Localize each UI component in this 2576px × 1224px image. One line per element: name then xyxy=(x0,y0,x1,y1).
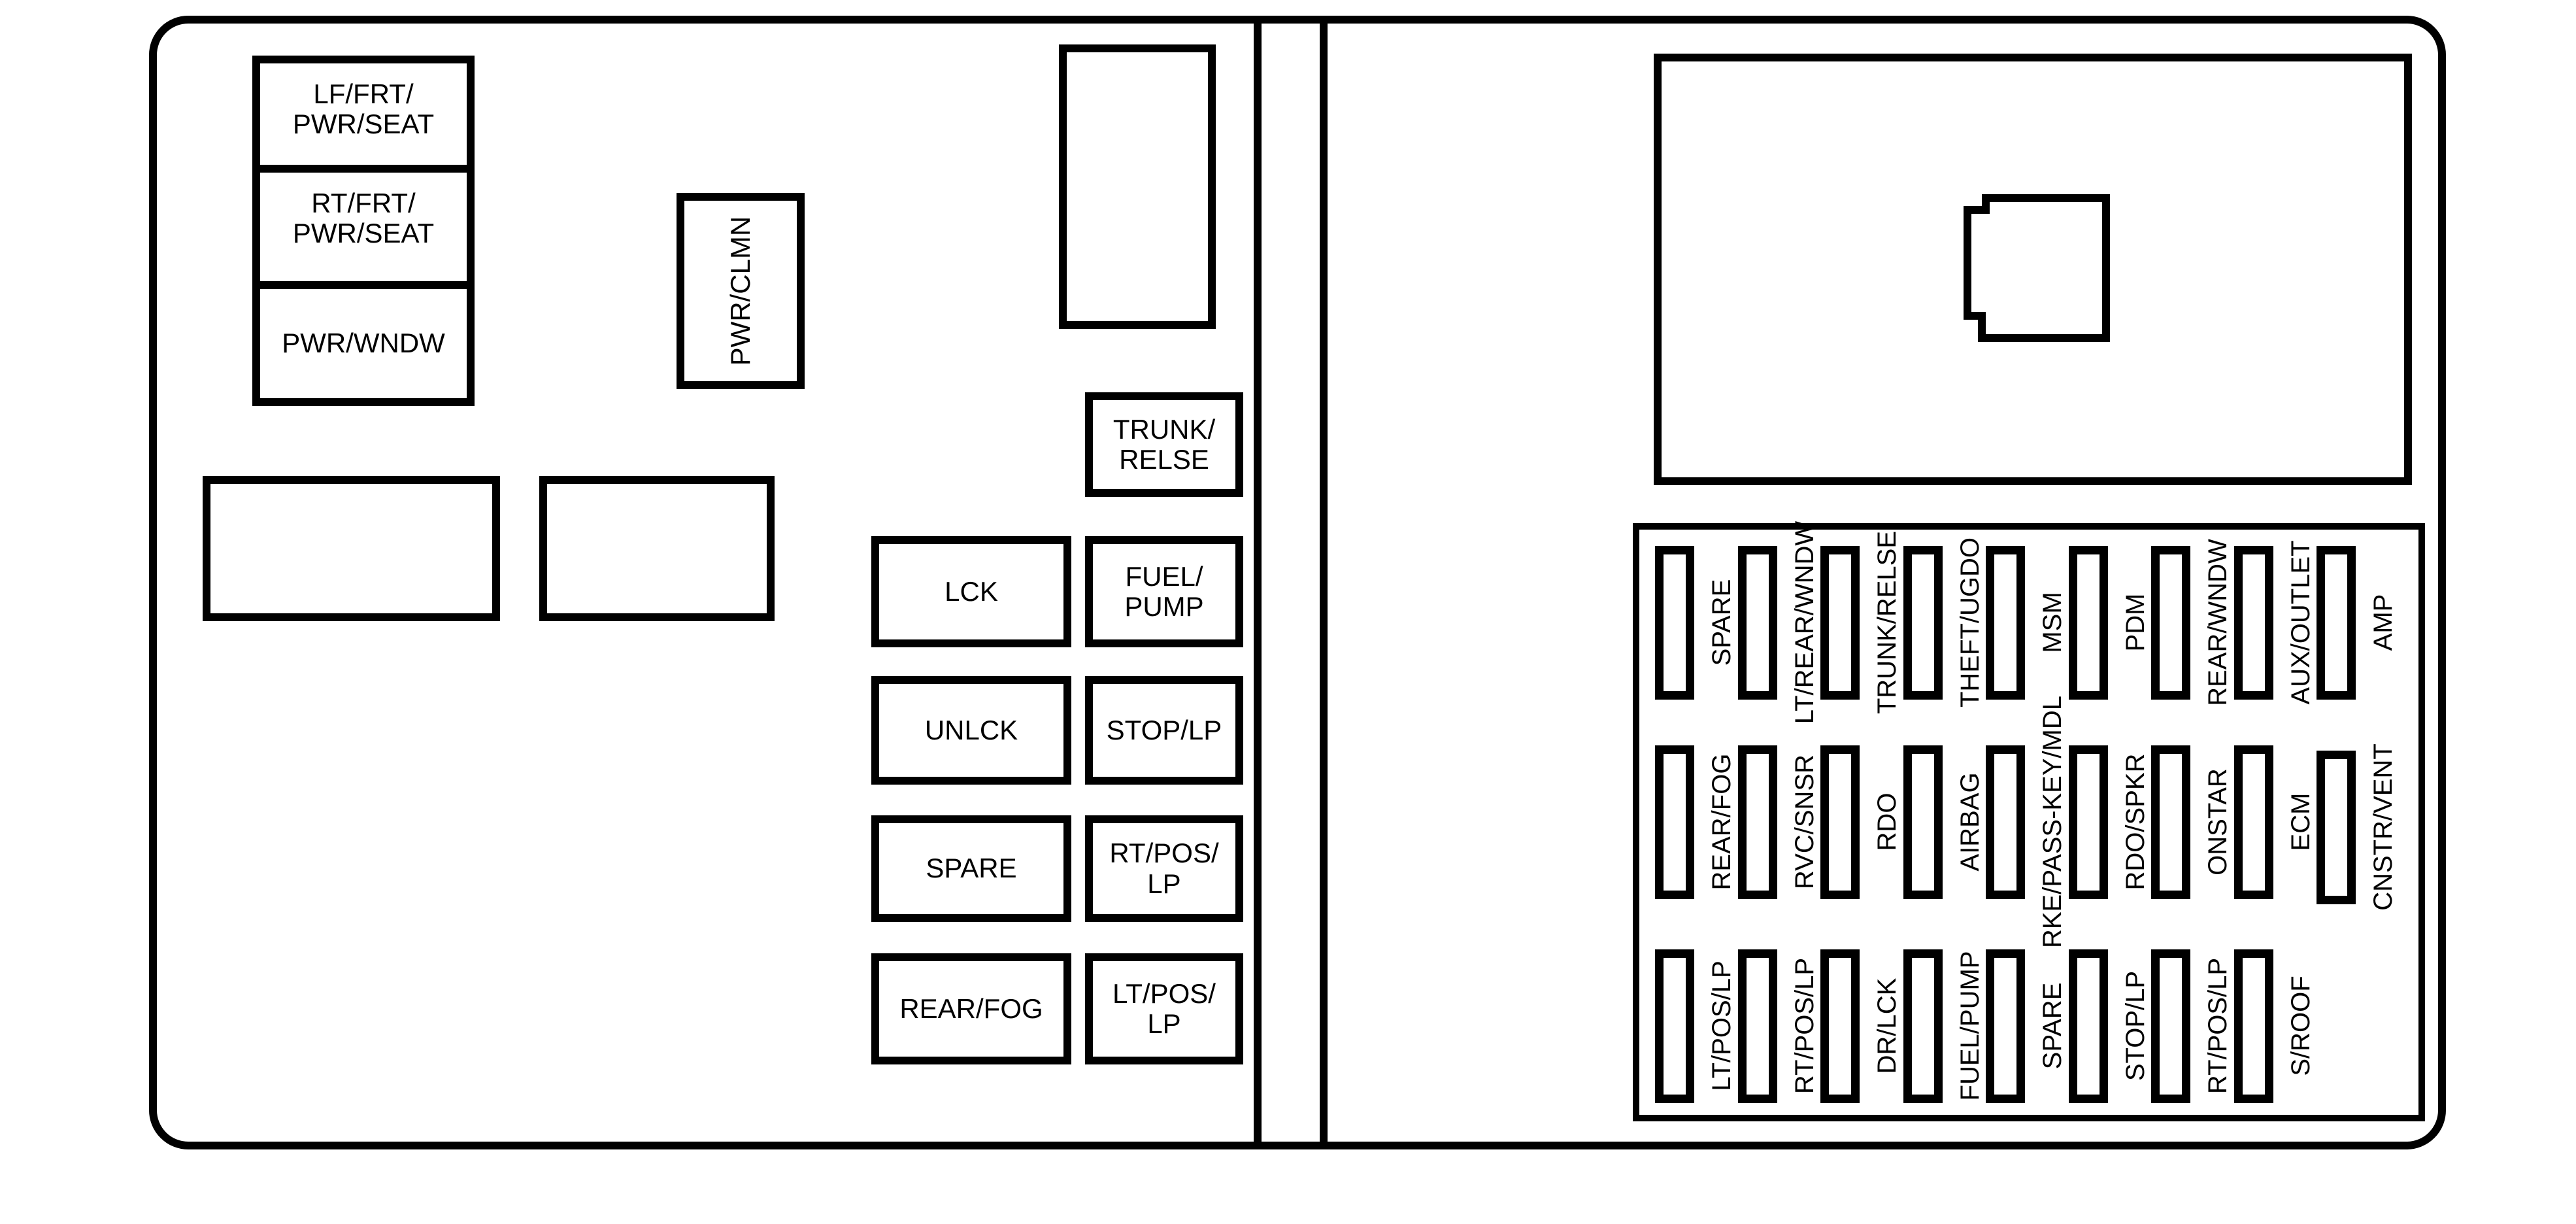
relay-box-blank-2 xyxy=(539,476,775,621)
relay-box-trunk-relse: TRUNK/ RELSE xyxy=(1085,392,1243,497)
relay-box-rt-frt-pwr-seat: RT/FRT/ PWR/SEAT xyxy=(252,165,475,289)
fuse-label-r3-c5: SPARE xyxy=(2038,875,2067,1176)
relay-box-label: FUEL/ PUMP xyxy=(1124,562,1203,622)
fuse-r2-c6 xyxy=(2069,745,2108,899)
relay-box-blank-tall xyxy=(1059,44,1216,329)
panel-divider-left xyxy=(1254,20,1262,1146)
panel-divider-right xyxy=(1320,20,1328,1146)
fuse-label-r3-c2: RT/POS/LP xyxy=(1790,875,1819,1176)
relay-box-lt-pos-lp: LT/POS/ LP xyxy=(1085,953,1243,1064)
fuse-r1-c7 xyxy=(2151,546,2190,700)
fuse-r2-c9 xyxy=(2317,751,2356,904)
relay-box-label: LT/POS/ LP xyxy=(1112,979,1216,1039)
fuse-r3-c1 xyxy=(1655,949,1694,1103)
fuse-r1-c2 xyxy=(1738,546,1777,700)
fuse-r3-c2 xyxy=(1738,949,1777,1103)
relay-box-label: UNLCK xyxy=(925,715,1018,745)
relay-box-lf-frt-pwr-seat: LF/FRT/ PWR/SEAT xyxy=(252,56,475,173)
fuse-r2-c4 xyxy=(1903,745,1943,899)
fuse-r1-c6 xyxy=(2069,546,2108,700)
relay-box-label: REAR/FOG xyxy=(899,994,1043,1024)
relay-box-lck: LCK xyxy=(871,536,1071,647)
relay-box-label: PWR/WNDW xyxy=(282,328,445,358)
relay-box-pwr-wndw: PWR/WNDW xyxy=(252,281,475,406)
fuse-box-diagram: LF/FRT/ PWR/SEAT RT/FRT/ PWR/SEAT PWR/WN… xyxy=(0,0,2576,1224)
relay-box-rt-pos-lp: RT/POS/ LP xyxy=(1085,815,1243,922)
fuse-r1-c1 xyxy=(1655,546,1694,700)
fuse-r2-c5 xyxy=(1986,745,2025,899)
fuse-r1-c5 xyxy=(1986,546,2025,700)
fuse-r3-c5 xyxy=(1986,949,2025,1103)
fuse-r2-c2 xyxy=(1738,745,1777,899)
fuse-r3-c3 xyxy=(1820,949,1860,1103)
fuse-r3-c6 xyxy=(2069,949,2108,1103)
relay-box-label: SPARE xyxy=(926,853,1016,883)
relay-box-label: PWR/CLMN xyxy=(726,216,756,366)
relay-box-pwr-clmn: PWR/CLMN xyxy=(677,193,805,389)
fuse-r2-c1 xyxy=(1655,745,1694,899)
connector-silhouette xyxy=(1954,190,2118,347)
fuse-r1-c9 xyxy=(2317,546,2356,700)
fuse-label-r3-c3: DR/LCK xyxy=(1873,875,1901,1176)
relay-box-label: TRUNK/ RELSE xyxy=(1113,415,1215,475)
fuse-label-r3-c7: RT/POS/LP xyxy=(2203,875,2232,1176)
relay-box-blank-1 xyxy=(203,476,500,621)
fuse-r1-c4 xyxy=(1903,546,1943,700)
fuse-r3-c8 xyxy=(2234,949,2273,1103)
fuse-label-r3-c1: LT/POS/LP xyxy=(1707,875,1736,1176)
fuse-r2-c3 xyxy=(1820,745,1860,899)
relay-box-fuel-pump: FUEL/ PUMP xyxy=(1085,536,1243,647)
relay-box-unlck: UNLCK xyxy=(871,676,1071,785)
fuse-label-r2-c9: CNSTR/VENT xyxy=(2369,677,2398,977)
fuse-r1-c8 xyxy=(2234,546,2273,700)
relay-box-rear-fog: REAR/FOG xyxy=(871,953,1071,1064)
fuse-label-r3-c8: S/ROOF xyxy=(2286,875,2315,1176)
relay-box-label: LCK xyxy=(945,577,998,607)
fuse-r3-c4 xyxy=(1903,949,1943,1103)
fuse-r2-c8 xyxy=(2234,745,2273,899)
relay-box-label: RT/FRT/ PWR/SEAT xyxy=(293,173,434,248)
fuse-label-r3-c6: STOP/LP xyxy=(2121,875,2150,1176)
fuse-r1-c3 xyxy=(1820,546,1860,700)
fuse-r2-c7 xyxy=(2151,745,2190,899)
relay-box-label: LF/FRT/ PWR/SEAT xyxy=(293,63,434,139)
relay-box-spare: SPARE xyxy=(871,815,1071,922)
relay-box-label: RT/POS/ LP xyxy=(1109,838,1218,898)
relay-box-label: STOP/LP xyxy=(1107,715,1222,745)
fuse-r3-c7 xyxy=(2151,949,2190,1103)
fuse-label-r3-c4: FUEL/PUMP xyxy=(1956,875,1984,1176)
relay-box-stop-lp: STOP/LP xyxy=(1085,676,1243,785)
